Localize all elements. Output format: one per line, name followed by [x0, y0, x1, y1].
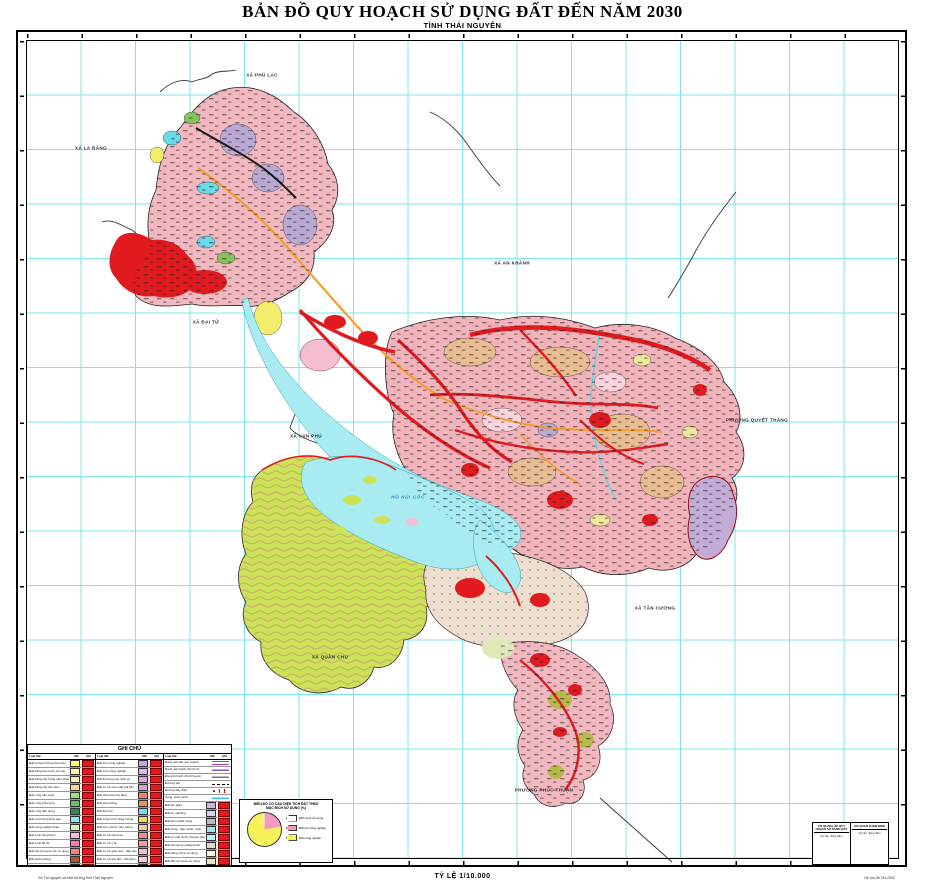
- planned-red-swatch: [150, 760, 162, 767]
- signature-right-column: CƠ QUAN THẨM ĐỊNH (Ký tên, đóng dấu): [851, 823, 888, 864]
- color-swatch: [206, 810, 216, 816]
- legend-row: Đất sông, ngòi, kênh, rạch: [164, 826, 231, 834]
- legend-label: Đất cơ sở giáo dục - đào tạo: [96, 850, 137, 853]
- legend-label: Đường sắt: [164, 782, 210, 785]
- map-inner-frame: [26, 40, 899, 859]
- legend-row: Ranh giới hành chính xã: [164, 767, 231, 774]
- line-violet-symbol: [212, 768, 229, 773]
- legend-row: Đất giao thông: [96, 800, 163, 808]
- signature-box: CƠ QUAN LẬP QUY HOẠCH SỬ DỤNG ĐẤT (Ký tê…: [812, 822, 889, 865]
- color-swatch: [206, 802, 216, 808]
- planned-red-swatch: [218, 850, 230, 857]
- legend-label: Đất xây dựng trụ sở cơ quan: [28, 850, 69, 853]
- legend-label: Đất đồi núi chưa sử dụng: [164, 860, 205, 863]
- planned-red-swatch: [150, 840, 162, 847]
- legend-row: Đất công trình năng lượng: [96, 816, 163, 824]
- signature-left-header: CƠ QUAN LẬP QUY HOẠCH SỬ DỤNG ĐẤT: [814, 825, 849, 834]
- legend-row: Đất xây dựng trụ sở cơ quan: [28, 848, 95, 856]
- pie-marker: [286, 834, 297, 841]
- color-swatch: [70, 792, 80, 798]
- color-swatch: [70, 808, 80, 814]
- legend-row: Đất phi nông nghiệp khác: [164, 842, 231, 850]
- pie-legend-label: Đất phi nông nghiệp: [299, 826, 326, 830]
- legend-header: QH: [218, 754, 231, 759]
- legend-row: Đất trồng cây hàng năm khác: [28, 776, 95, 784]
- legend-groups: Loại đấtMãQHĐất chuyên trồng lúa nướcĐất…: [28, 754, 231, 866]
- legend-header: Loại đất: [164, 754, 207, 759]
- color-swatch: [70, 816, 80, 822]
- color-swatch: [138, 816, 148, 822]
- color-swatch: [206, 858, 216, 864]
- frame-ticks-right: [901, 41, 905, 858]
- signature-left-column: CƠ QUAN LẬP QUY HOẠCH SỬ DỤNG ĐẤT (Ký tê…: [813, 823, 851, 864]
- legend-label: Đất rừng đặc dụng: [28, 810, 69, 813]
- legend-label: Đất có mặt nước chuyên dùng: [164, 836, 205, 839]
- legend-row: Đất cơ sở sản xuất phi NN: [96, 784, 163, 792]
- planned-red-swatch: [150, 792, 162, 799]
- legend-label: Đất tín ngưỡng: [164, 812, 205, 815]
- legend-label: Đất nuôi trồng thủy sản: [28, 818, 69, 821]
- legend-label: Đất cơ sở văn hóa: [96, 834, 137, 837]
- legend-row: Đất nuôi trồng thủy sản: [28, 816, 95, 824]
- legend-group-1: Loại đấtMãQHĐất chuyên trồng lúa nướcĐất…: [28, 754, 96, 866]
- planned-red-swatch: [82, 824, 94, 831]
- color-swatch: [206, 850, 216, 856]
- legend-row: Đất ở tại đô thị: [28, 840, 95, 848]
- color-swatch: [70, 840, 80, 846]
- pie-title-line2: MỤC ĐÍCH SỬ DỤNG (%): [242, 806, 330, 810]
- pie-legend-label: Đất chưa sử dụng: [299, 816, 323, 820]
- legend-row: Đất chợ: [96, 864, 163, 866]
- color-swatch: [138, 824, 148, 830]
- legend-label: Đất phi nông nghiệp khác: [164, 844, 205, 847]
- planned-red-swatch: [150, 800, 162, 807]
- legend-label: Đường dây điện: [164, 789, 210, 792]
- legend-group-3: Loại đấtMãQHRanh giới lập quy hoạchRanh …: [164, 754, 231, 866]
- legend-label: Đất chuyên trồng lúa nước: [28, 762, 69, 765]
- planned-red-swatch: [82, 792, 94, 799]
- planned-red-swatch: [82, 808, 94, 815]
- planned-red-swatch: [218, 826, 230, 833]
- region-label: XÃ VẠN PHÚ: [290, 434, 322, 439]
- legend-row: Đất an ninh: [28, 864, 95, 866]
- legend-label: Ranh giới lập quy hoạch: [164, 761, 210, 764]
- legend-row: Đất chuyên trồng lúa nước: [28, 760, 95, 768]
- color-swatch: [206, 834, 216, 840]
- color-swatch: [70, 864, 80, 866]
- legend-header: QH: [82, 754, 95, 759]
- signature-right-body: (Ký tên, đóng dấu): [852, 832, 887, 835]
- planned-red-swatch: [82, 816, 94, 823]
- planned-red-swatch: [150, 784, 162, 791]
- color-swatch: [138, 840, 148, 846]
- color-swatch: [70, 784, 80, 790]
- planned-red-swatch: [82, 768, 94, 775]
- fineprint-left: Sở Tài nguyên và Môi trường tỉnh Thái Ng…: [38, 876, 113, 880]
- planned-red-swatch: [82, 784, 94, 791]
- legend-row: Đất cơ sở y tế: [96, 840, 163, 848]
- legend-label: Đất phát triển hạ tầng: [96, 794, 137, 797]
- signature-right-header: CƠ QUAN THẨM ĐỊNH: [852, 825, 887, 830]
- legend-row: Đất ở tại nông thôn: [28, 832, 95, 840]
- legend-label: Đất cụm công nghiệp: [96, 770, 137, 773]
- color-swatch: [138, 832, 148, 838]
- region-label: XÃ AN KHÁNH: [494, 261, 530, 266]
- color-swatch: [70, 824, 80, 830]
- legend-row: Đất thủy lợi: [96, 808, 163, 816]
- map-title: BẢN ĐỒ QUY HOẠCH SỬ DỤNG ĐẤT ĐẾN NĂM 203…: [0, 2, 925, 22]
- legend-row: Đất bưu chính, viễn thông: [96, 824, 163, 832]
- legend-label: Đất bằng chưa sử dụng: [164, 852, 205, 855]
- color-swatch: [138, 776, 148, 782]
- legend-label: Đất rừng sản xuất: [28, 794, 69, 797]
- legend-row: Đất trồng cây lâu năm: [28, 784, 95, 792]
- legend-row: Đất rừng sản xuất: [28, 792, 95, 800]
- line-purple-symbol: [212, 761, 229, 766]
- line-gray-symbol: [212, 775, 229, 780]
- legend-row: Đất trồng lúa nước còn lại: [28, 768, 95, 776]
- planned-red-swatch: [150, 824, 162, 831]
- frame-ticks-top: [27, 34, 898, 38]
- pie-chart-box: BIỂU ĐỒ CƠ CẤU DIỆN TÍCH ĐẤT THEO MỤC ĐÍ…: [239, 799, 333, 863]
- legend-row: Đất tôn giáo: [164, 802, 231, 810]
- color-swatch: [70, 776, 80, 782]
- legend-row: Đất cơ sở giáo dục - đào tạo: [96, 848, 163, 856]
- legend-row: Ranh giới lập quy hoạch: [164, 760, 231, 767]
- legend-title: GHI CHÚ: [28, 745, 231, 754]
- legend-label: Đất ở tại nông thôn: [28, 834, 69, 837]
- planned-red-swatch: [82, 832, 94, 839]
- pie-legend: Đất chưa sử dụngĐất phi nông nghiệpĐất n…: [286, 815, 330, 847]
- planned-red-swatch: [150, 768, 162, 775]
- region-label: XÃ TÂN CƯƠNG: [635, 606, 676, 611]
- signature-left-body: (Ký tên, đóng dấu): [814, 835, 849, 838]
- planned-red-swatch: [82, 864, 94, 866]
- dash-black-symbol: [212, 784, 229, 786]
- legend-row: Đất đồi núi chưa sử dụng: [164, 858, 231, 866]
- legend-label: Đất tôn giáo: [164, 804, 205, 807]
- legend-header: Mã: [139, 754, 150, 759]
- legend-label: Đất làm nghĩa trang: [164, 820, 205, 823]
- legend-label: Đất cơ sở y tế: [96, 842, 137, 845]
- legend-label: Đất trồng lúa nước còn lại: [28, 770, 69, 773]
- planned-red-swatch: [82, 848, 94, 855]
- color-swatch: [138, 792, 148, 798]
- region-label: XÃ PHÚ LẠC: [246, 73, 278, 78]
- map-scale: TỶ LỆ 1/10.000: [0, 873, 925, 880]
- legend-label: Đất công trình năng lượng: [96, 818, 137, 821]
- legend-label: Đất cơ sở sản xuất phi NN: [96, 786, 137, 789]
- pie-legend-item: Đất chưa sử dụng: [286, 815, 330, 822]
- legend-row: Đất cơ sở thể dục - thể thao: [96, 856, 163, 864]
- color-swatch: [138, 808, 148, 814]
- planned-red-swatch: [82, 840, 94, 847]
- line-cyan-symbol: [212, 796, 229, 801]
- legend-label: Địa giới hành chính huyện: [164, 775, 210, 778]
- planned-red-swatch: [218, 818, 230, 825]
- legend-label: Đất khu công nghiệp: [96, 762, 137, 765]
- legend-label: Đất rừng phòng hộ: [28, 802, 69, 805]
- color-swatch: [70, 768, 80, 774]
- legend-row: Đất rừng phòng hộ: [28, 800, 95, 808]
- legend-header: Loại đất: [96, 754, 139, 759]
- legend-label: Đất trồng cây hàng năm khác: [28, 778, 69, 781]
- legend-label: Đất cơ sở thể dục - thể thao: [96, 858, 137, 861]
- pie-legend-label: Đất nông nghiệp: [299, 836, 321, 840]
- planned-red-swatch: [82, 800, 94, 807]
- planned-red-swatch: [218, 834, 230, 841]
- color-swatch: [138, 800, 148, 806]
- frame-ticks-left: [20, 41, 24, 858]
- planned-red-swatch: [82, 760, 94, 767]
- color-swatch: [206, 842, 216, 848]
- legend-row: Đất quốc phòng: [28, 856, 95, 864]
- color-swatch: [138, 760, 148, 766]
- legend-row: Đất tín ngưỡng: [164, 810, 231, 818]
- legend-label: Đất quốc phòng: [28, 858, 69, 861]
- color-swatch: [206, 826, 216, 832]
- color-swatch: [138, 848, 148, 854]
- legend-row: Đất nông nghiệp khác: [28, 824, 95, 832]
- region-label: PHƯỜNG QUYẾT THẮNG: [726, 418, 788, 423]
- legend-row: Đất cơ sở văn hóa: [96, 832, 163, 840]
- land-use-pie-chart: [247, 812, 282, 847]
- planned-red-swatch: [150, 864, 162, 866]
- legend-box: GHI CHÚ Loại đấtMãQHĐất chuyên trồng lúa…: [27, 744, 232, 866]
- legend-row: Đất thương mại, dịch vụ: [96, 776, 163, 784]
- legend-header: Loại đất: [28, 754, 71, 759]
- legend-header: QH: [150, 754, 163, 759]
- legend-row: Đất cụm công nghiệp: [96, 768, 163, 776]
- planned-red-swatch: [82, 776, 94, 783]
- legend-label: Đất sông, ngòi, kênh, rạch: [164, 828, 205, 831]
- pie-marker: [286, 825, 297, 832]
- color-swatch: [138, 856, 148, 862]
- pie-legend-item: Đất phi nông nghiệp: [286, 825, 330, 832]
- pie-legend-item: Đất nông nghiệp: [286, 834, 330, 841]
- legend-header: Mã: [207, 754, 218, 759]
- dots-black-symbol: [212, 789, 229, 794]
- color-swatch: [70, 856, 80, 862]
- planned-red-swatch: [150, 848, 162, 855]
- color-swatch: [206, 818, 216, 824]
- color-swatch: [138, 864, 148, 866]
- planned-red-swatch: [218, 802, 230, 809]
- color-swatch: [70, 832, 80, 838]
- region-label: XÃ ĐẠI TỪ: [193, 320, 220, 325]
- legend-row: Đất bằng chưa sử dụng: [164, 850, 231, 858]
- planned-red-swatch: [150, 832, 162, 839]
- legend-label: Đất thương mại, dịch vụ: [96, 778, 137, 781]
- legend-row: Đường dây điện: [164, 788, 231, 795]
- planned-red-swatch: [150, 856, 162, 863]
- legend-label: Ranh giới hành chính xã: [164, 768, 210, 771]
- map-sheet: BẢN ĐỒ QUY HOẠCH SỬ DỤNG ĐẤT ĐẾN NĂM 203…: [0, 0, 925, 891]
- legend-row: Đất rừng đặc dụng: [28, 808, 95, 816]
- region-label: PHƯỜNG PHÚC THUẬN: [515, 788, 574, 793]
- planned-red-swatch: [150, 776, 162, 783]
- planned-red-swatch: [150, 808, 162, 815]
- planned-red-swatch: [150, 816, 162, 823]
- color-swatch: [70, 800, 80, 806]
- legend-row: Đất có mặt nước chuyên dùng: [164, 834, 231, 842]
- legend-row: Đất làm nghĩa trang: [164, 818, 231, 826]
- legend-label: Đất trồng cây lâu năm: [28, 786, 69, 789]
- color-swatch: [70, 760, 80, 766]
- map-subtitle: TỈNH THÁI NGUYÊN: [0, 21, 925, 30]
- legend-row: Đất khu công nghiệp: [96, 760, 163, 768]
- legend-row: Đường sắt: [164, 781, 231, 788]
- legend-label: Đất ở tại đô thị: [28, 842, 69, 845]
- legend-row: Sông, suối, kênh: [164, 795, 231, 802]
- legend-label: Sông, suối, kênh: [164, 796, 210, 799]
- legend-label: Đất thủy lợi: [96, 810, 137, 813]
- legend-header: Mã: [71, 754, 82, 759]
- legend-group-2: Loại đấtMãQHĐất khu công nghiệpĐất cụm c…: [96, 754, 164, 866]
- region-label: XÃ LA BẰNG: [75, 146, 107, 151]
- water-label: HỒ NÚI CỐC: [391, 495, 425, 500]
- legend-row: Đất phát triển hạ tầng: [96, 792, 163, 800]
- planned-red-swatch: [82, 856, 94, 863]
- pie-marker: [286, 815, 297, 822]
- color-swatch: [70, 848, 80, 854]
- planned-red-swatch: [218, 858, 230, 865]
- legend-label: Đất nông nghiệp khác: [28, 826, 69, 829]
- planned-red-swatch: [218, 810, 230, 817]
- legend-row: Địa giới hành chính huyện: [164, 774, 231, 781]
- legend-label: Đất bưu chính, viễn thông: [96, 826, 137, 829]
- color-swatch: [138, 784, 148, 790]
- planned-red-swatch: [218, 842, 230, 849]
- region-label: XÃ QUÂN CHU: [312, 655, 348, 660]
- legend-label: Đất giao thông: [96, 802, 137, 805]
- color-swatch: [138, 768, 148, 774]
- fineprint-right: Hệ tọa độ VN-2000: [864, 876, 895, 880]
